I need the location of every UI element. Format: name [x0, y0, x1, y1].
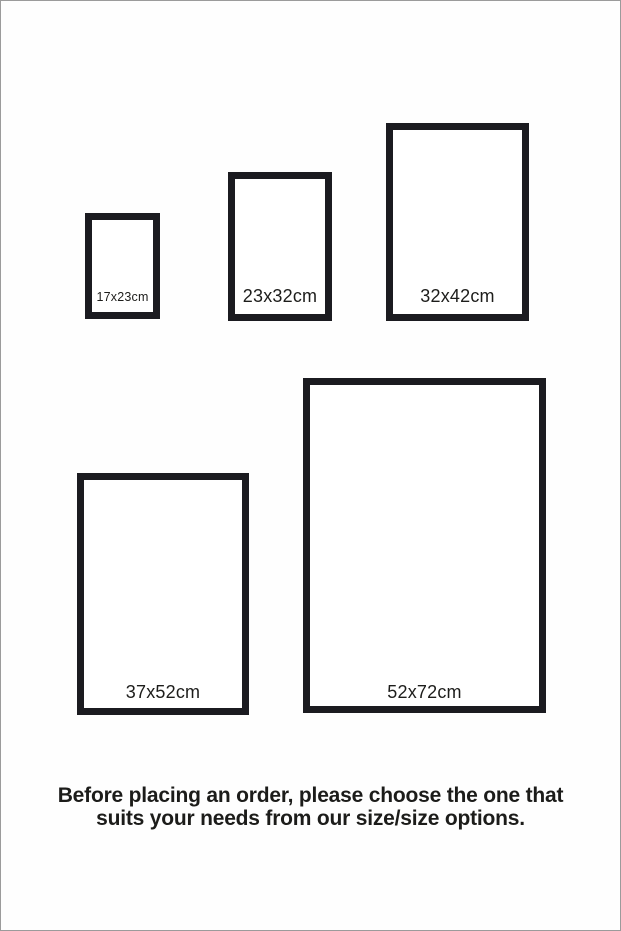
size-frame-32x42: 32x42cm: [386, 123, 529, 321]
frame-size-label: 37x52cm: [126, 683, 200, 708]
size-frame-17x23: 17x23cm: [85, 213, 160, 319]
order-note: Before placing an order, please choose t…: [1, 784, 620, 830]
order-note-line2: suits your needs from our size/size opti…: [1, 807, 620, 830]
frame-size-label: 17x23cm: [96, 291, 148, 313]
frame-size-label: 52x72cm: [387, 683, 461, 706]
order-note-line1: Before placing an order, please choose t…: [1, 784, 620, 807]
size-frame-23x32: 23x32cm: [228, 172, 332, 321]
size-frame-37x52: 37x52cm: [77, 473, 249, 715]
size-chart: 17x23cm 23x32cm 32x42cm 37x52cm 52x72cm …: [0, 0, 621, 931]
frame-size-label: 32x42cm: [420, 287, 494, 314]
frame-size-label: 23x32cm: [243, 287, 317, 314]
size-frame-52x72: 52x72cm: [303, 378, 546, 713]
